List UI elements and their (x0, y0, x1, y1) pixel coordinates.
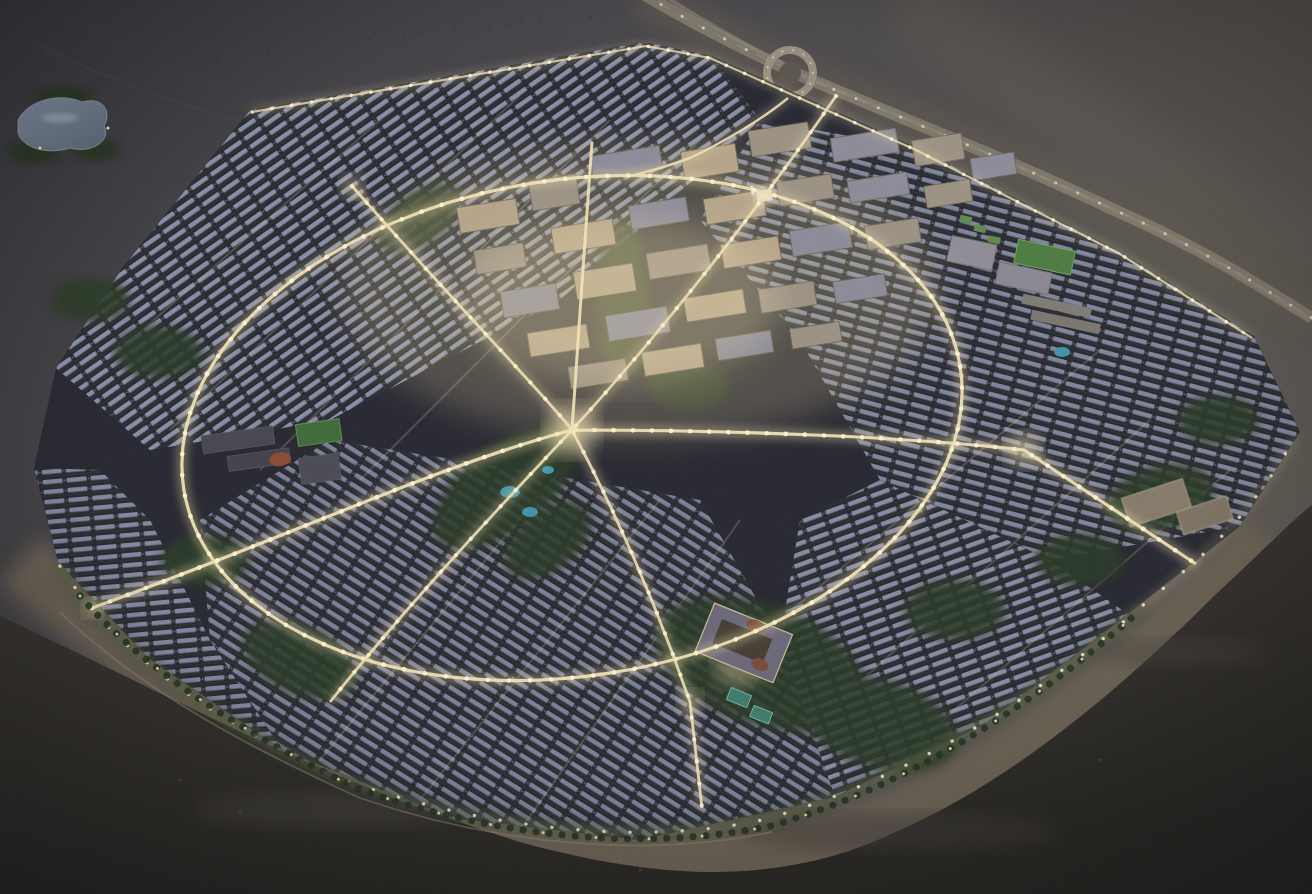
vignette (0, 0, 1312, 894)
masterplan-scene (0, 0, 1312, 894)
aerial-render (0, 0, 1312, 894)
